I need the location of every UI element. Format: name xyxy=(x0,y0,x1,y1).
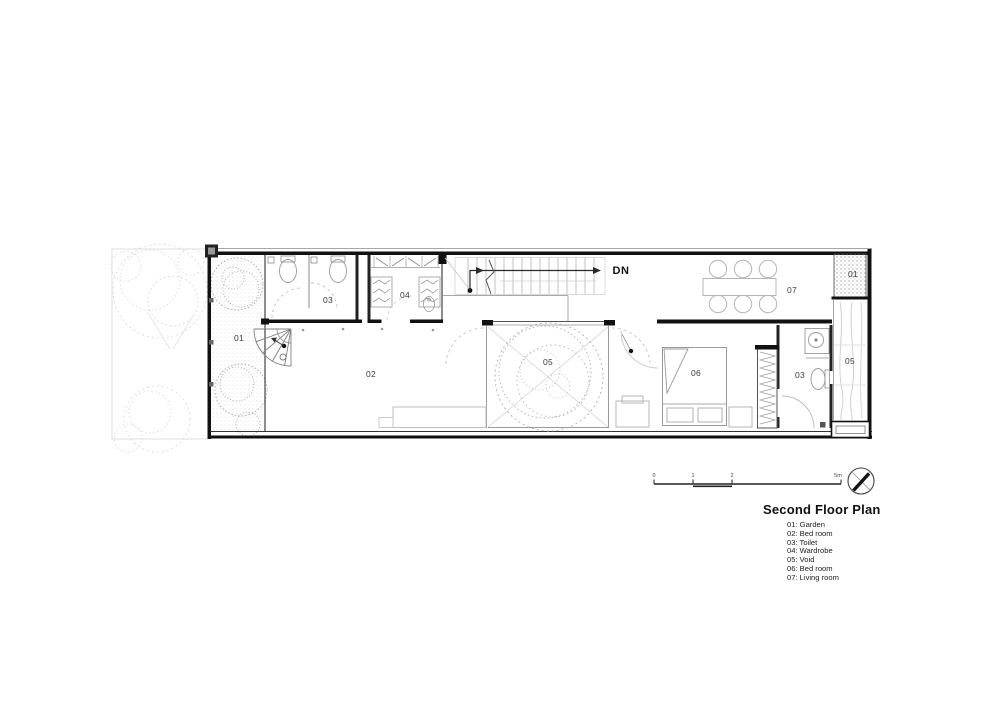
stair-dn-label: DN xyxy=(613,265,630,277)
room-label-bedroom-second: 06 xyxy=(691,368,701,378)
wardrobe-fixtures xyxy=(371,256,440,320)
void-center xyxy=(446,323,650,431)
legend-item: 07: Living room xyxy=(787,574,839,583)
floor-plan-linework xyxy=(0,0,1000,707)
void-right-strip xyxy=(832,300,870,438)
bedroom-second-furniture xyxy=(616,331,779,428)
page-title: Second Floor Plan xyxy=(763,502,881,517)
scale-tick-5m: 5m xyxy=(834,473,842,479)
room-label-bedroom-main: 02 xyxy=(366,369,376,379)
scale-tick-2: 2 xyxy=(730,473,733,479)
legend: 01: Garden 02: Bed room 03: Toilet 04: W… xyxy=(787,521,839,583)
scale-tick-0: 0 xyxy=(652,473,655,479)
dining-set xyxy=(703,260,777,312)
toilet-right-fixtures xyxy=(782,329,830,429)
floor-plan-sheet: DN 03 04 01 02 05 06 03 07 01 05 0 1 2 5… xyxy=(0,0,1000,707)
stair-down-arrow xyxy=(468,260,601,294)
toilet-left-fixtures xyxy=(268,255,347,318)
room-label-garden-right: 01 xyxy=(848,269,858,279)
room-label-living-room: 07 xyxy=(787,285,797,295)
room-label-void-right: 05 xyxy=(845,356,855,366)
bedroom-main-furniture xyxy=(302,328,486,428)
scale-tick-1: 1 xyxy=(691,473,694,479)
scale-bar xyxy=(654,480,841,488)
staircase xyxy=(443,258,605,322)
room-label-toilet-right: 03 xyxy=(795,370,805,380)
garden-left-trees xyxy=(211,256,267,436)
site-trees-outside xyxy=(111,244,208,452)
room-label-wardrobe: 04 xyxy=(400,290,410,300)
north-arrow-icon xyxy=(848,468,874,494)
room-label-void-center: 05 xyxy=(543,357,553,367)
room-label-toilet-left: 03 xyxy=(323,295,333,305)
room-label-garden-left: 01 xyxy=(234,333,244,343)
